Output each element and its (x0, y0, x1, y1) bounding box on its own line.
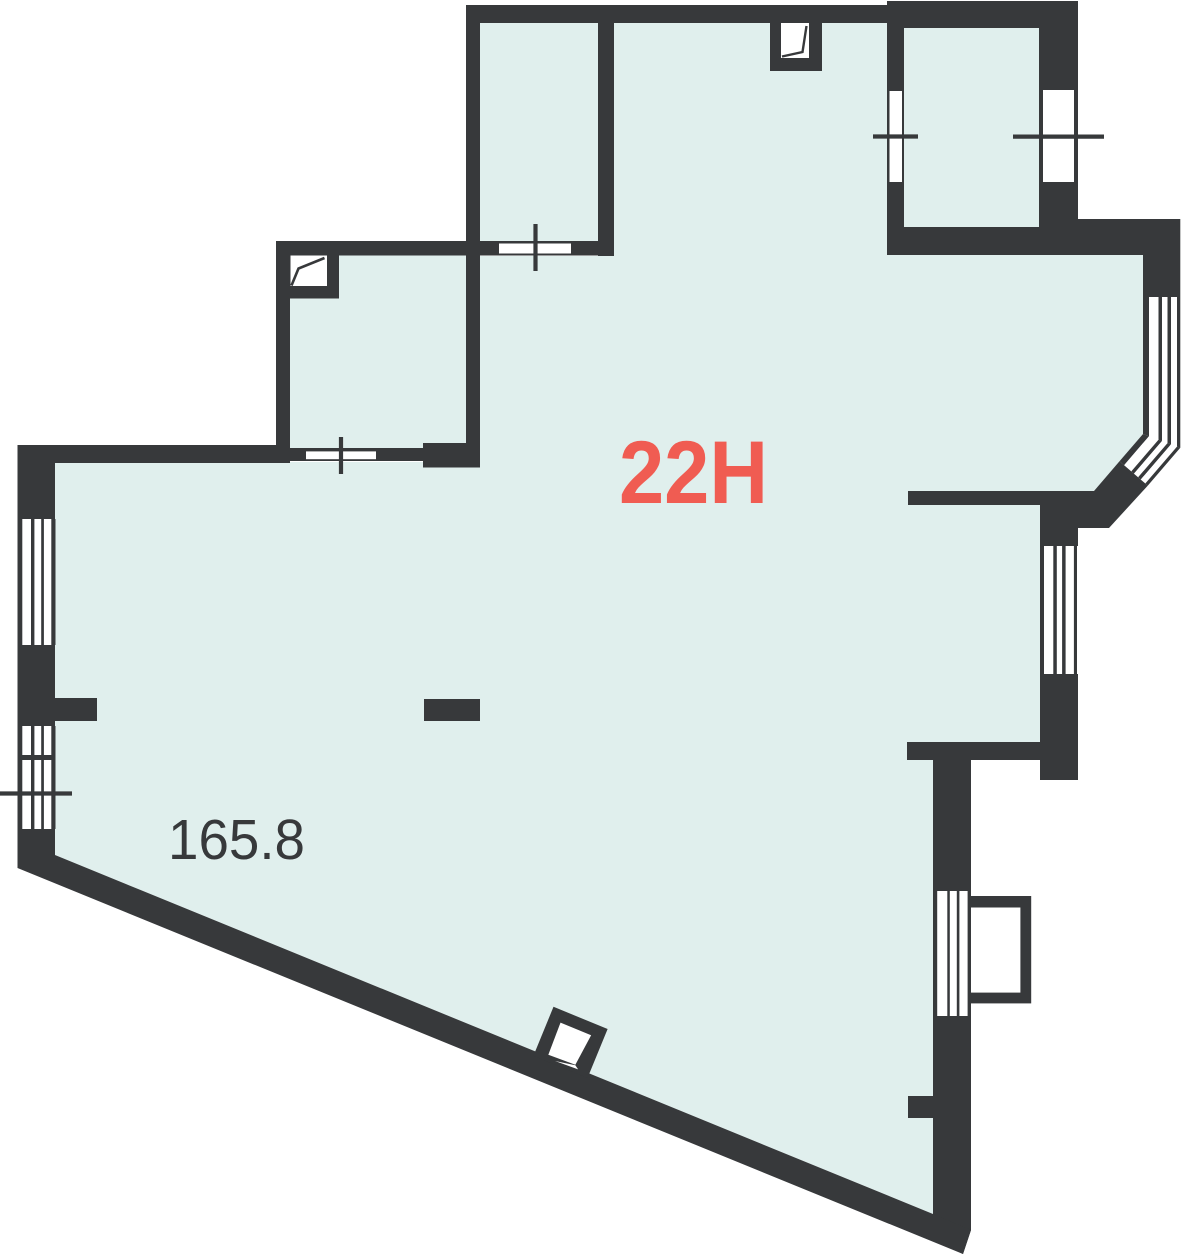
svg-text:165.8: 165.8 (168, 808, 305, 872)
svg-text:22H: 22H (619, 422, 768, 522)
